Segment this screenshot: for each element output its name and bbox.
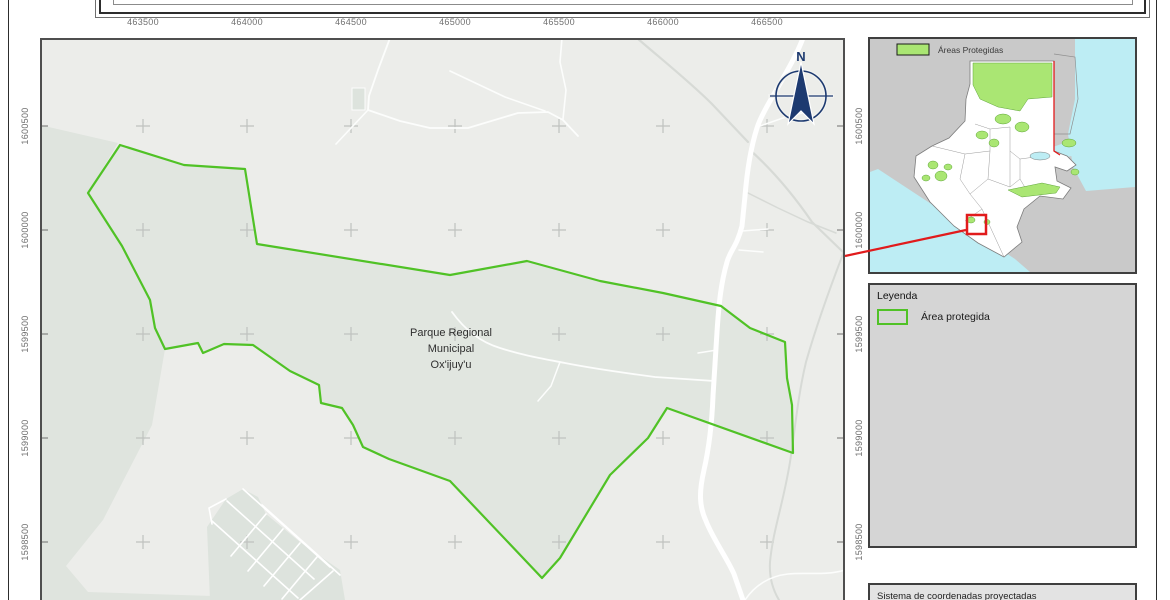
inset-map-canvas: Áreas Protegidas (870, 39, 1135, 272)
main-road (700, 38, 803, 600)
legend-item: Área protegida (877, 309, 1128, 325)
grid-label: 1598500 (20, 523, 30, 560)
grid-label: 1600000 (20, 211, 30, 248)
main-map-canvas: N (40, 38, 845, 600)
grid-label: 466500 (751, 17, 783, 27)
north-label: N (796, 49, 805, 64)
grid-label: 1600500 (854, 107, 864, 144)
page-frame-right (1156, 0, 1157, 600)
legend-title: Leyenda (877, 290, 1128, 302)
grid-label: 464000 (231, 17, 263, 27)
grid-label: 1599500 (20, 315, 30, 352)
grid-label: 466000 (647, 17, 679, 27)
main-map: N (40, 38, 845, 600)
page-frame-left (8, 0, 9, 600)
park-label-line3: Ox'ijuy'u (410, 357, 492, 373)
grid-label: 1600500 (20, 107, 30, 144)
grid-label: 1598500 (854, 523, 864, 560)
title-block-inner (113, 0, 1133, 5)
grid-label: 463500 (127, 17, 159, 27)
inset-legend-swatch (897, 44, 929, 55)
grid-label: 465000 (439, 17, 471, 27)
park-label-line1: Parque Regional (410, 325, 492, 341)
caribbean-sea (1068, 39, 1135, 191)
grid-label: 1599000 (20, 419, 30, 456)
map-sheet: N 46350046400046450046500046550046600046… (0, 0, 1170, 600)
legend-item-label: Área protegida (921, 311, 990, 323)
inset-legend-label: Áreas Protegidas (938, 45, 1003, 55)
legend: Leyenda Área protegida (868, 283, 1137, 548)
grid-label: 464500 (335, 17, 367, 27)
info-box: Sistema de coordenadas proyectadas (868, 583, 1137, 600)
info-text: Sistema de coordenadas proyectadas (877, 591, 1128, 600)
grid-label: 1599500 (854, 315, 864, 352)
grid-label: 465500 (543, 17, 575, 27)
park-label-line2: Municipal (410, 341, 492, 357)
inset-map: Áreas Protegidas (868, 37, 1137, 274)
legend-swatch (877, 309, 908, 325)
grid-label: 1599000 (854, 419, 864, 456)
parcel-rectangle (352, 88, 365, 110)
park-label: Parque Regional Municipal Ox'ijuy'u (410, 325, 492, 373)
lake-izabal (1030, 152, 1050, 160)
grid-label: 1600000 (854, 211, 864, 248)
